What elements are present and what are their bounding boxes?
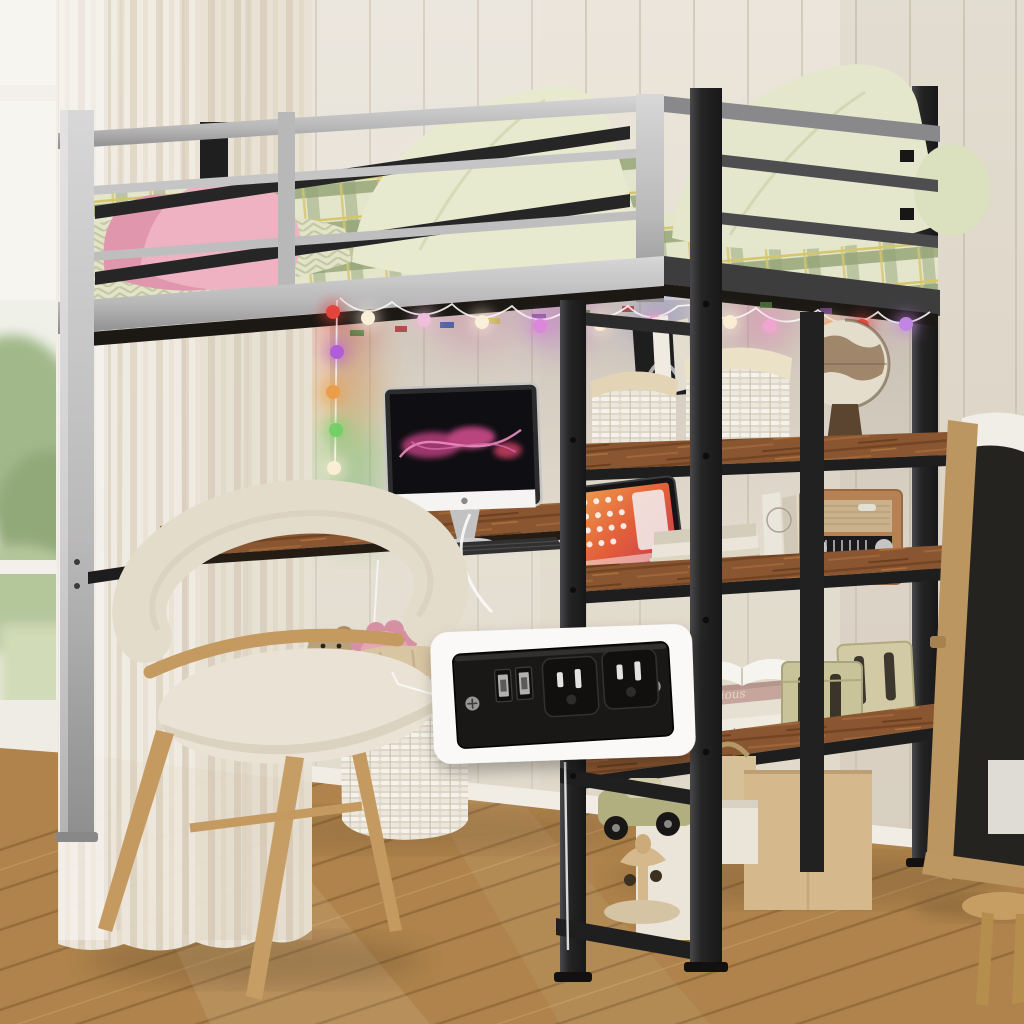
product-photo-stage: Delicious The honey badge bbox=[0, 0, 1024, 1024]
photo-vignette bbox=[0, 0, 1024, 1024]
scene: Delicious The honey badge bbox=[0, 0, 1024, 1024]
